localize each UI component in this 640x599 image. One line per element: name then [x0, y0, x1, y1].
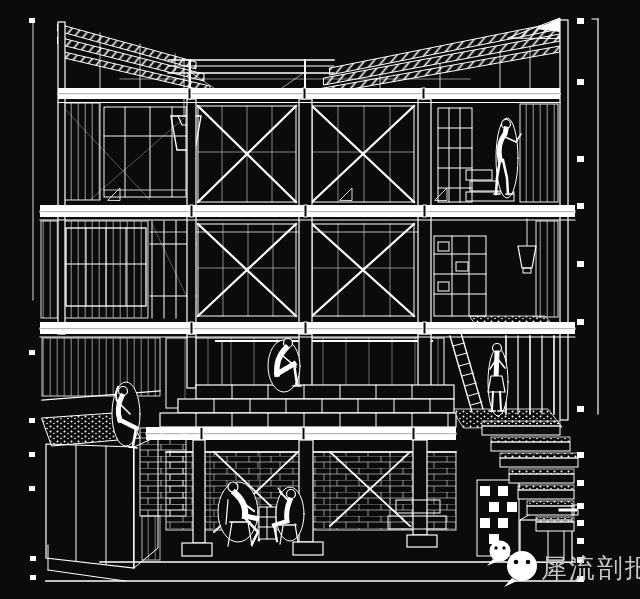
pendant-funnel-lamp — [518, 219, 536, 273]
cross-brace-bay — [198, 106, 296, 202]
stair-treads — [482, 421, 578, 531]
figure-woman-standing — [488, 344, 508, 417]
figure-person-standing-shelf — [494, 118, 521, 198]
section-drawing: 犀流剖报 — [0, 0, 640, 599]
foreground-stair — [477, 421, 578, 562]
shelving-unit — [434, 236, 486, 316]
planter-box — [42, 382, 186, 568]
ground-slab-band — [146, 427, 456, 440]
ladder — [450, 333, 483, 412]
watermark-text: 犀流剖报 — [541, 553, 640, 583]
dimension-ticks-left — [29, 18, 36, 580]
dimension-ticks-right — [577, 18, 598, 582]
article-image-canvas: 犀流剖报 — [0, 0, 640, 599]
shelf-frame — [438, 108, 472, 202]
cross-brace-bay — [198, 224, 296, 316]
crate-table — [259, 507, 276, 539]
cross-brace-bay — [312, 224, 414, 316]
cross-brace-bay — [312, 106, 414, 202]
